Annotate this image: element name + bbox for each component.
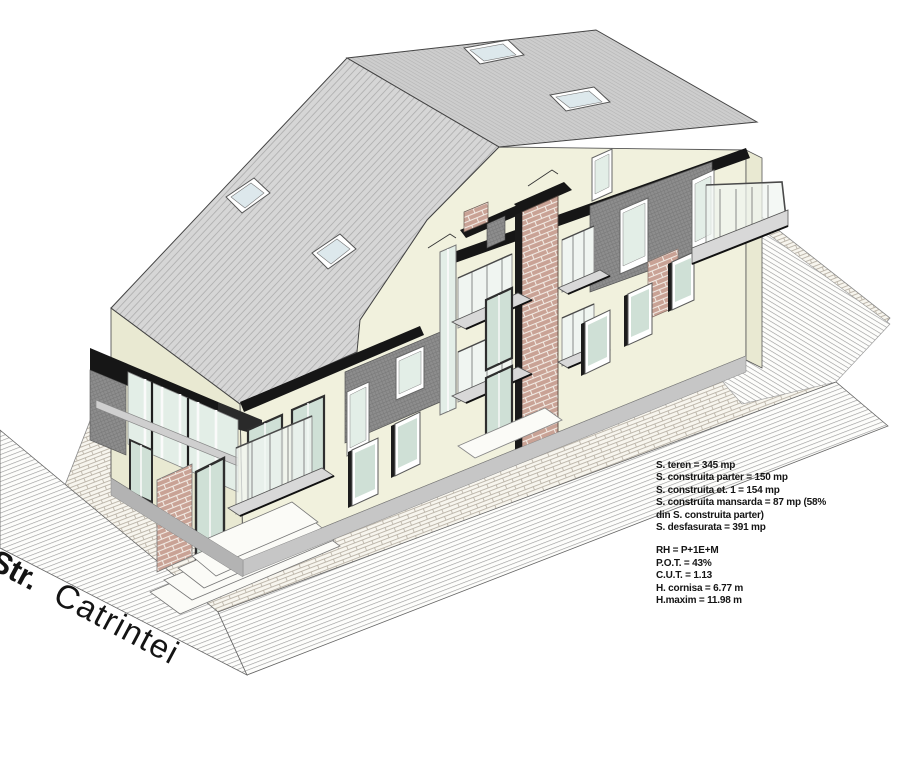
stairwell-window (486, 288, 512, 370)
stair-glazing (440, 245, 456, 415)
architectural-rendering-page: S. teren = 345 mpS. construita parter = … (0, 0, 900, 757)
stats-line: S. construita parter = 150 mp (656, 472, 856, 484)
balcony-door (620, 198, 648, 274)
stats-line: S. construita mansarda = 87 mp (58% (656, 497, 856, 509)
stats-line: C.U.T. = 1.13 (656, 570, 856, 582)
stats-line: P.O.T. = 43% (656, 558, 856, 570)
planning-stats-block: S. teren = 345 mpS. construita parter = … (656, 460, 856, 607)
stats-areas-group: S. teren = 345 mpS. construita parter = … (656, 460, 856, 534)
stats-line: RH = P+1E+M (656, 545, 856, 557)
stats-line: S. teren = 345 mp (656, 460, 856, 472)
stats-line: din S. construita parter) (656, 510, 856, 522)
stats-indicators-group: RH = P+1E+MP.O.T. = 43%C.U.T. = 1.13H. c… (656, 545, 856, 607)
window (592, 149, 612, 201)
stats-line: H. cornisa = 6.77 m (656, 583, 856, 595)
stats-line: S. desfasurata = 391 mp (656, 522, 856, 534)
tower-shadow-edge (515, 212, 522, 454)
stats-gap (656, 534, 856, 545)
stats-line: H.maxim = 11.98 m (656, 595, 856, 607)
stats-line: S. construita et. 1 = 154 mp (656, 485, 856, 497)
